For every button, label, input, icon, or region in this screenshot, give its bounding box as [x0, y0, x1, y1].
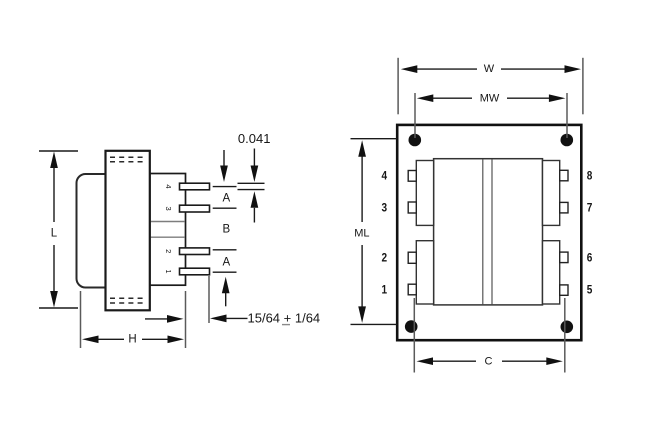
svg-text:3: 3 [164, 207, 173, 211]
svg-text:W: W [484, 63, 495, 75]
svg-text:0.041: 0.041 [238, 131, 271, 146]
svg-text:A: A [222, 192, 230, 204]
svg-text:6: 6 [587, 250, 593, 264]
svg-text:2: 2 [382, 250, 388, 264]
svg-text:7: 7 [587, 200, 593, 214]
svg-text:4: 4 [382, 168, 388, 182]
svg-text:2: 2 [164, 249, 173, 253]
svg-text:3: 3 [382, 200, 388, 214]
svg-text:MW: MW [480, 92, 500, 104]
svg-text:ML: ML [354, 228, 369, 240]
svg-text:A: A [222, 257, 230, 269]
svg-text:H: H [128, 333, 136, 345]
svg-text:1: 1 [382, 282, 388, 296]
svg-text:8: 8 [587, 168, 593, 182]
svg-text:1: 1 [164, 269, 173, 273]
svg-text:15/64 + 1/64: 15/64 + 1/64 [248, 310, 321, 325]
svg-text:C: C [485, 355, 493, 367]
svg-text:B: B [222, 224, 230, 236]
svg-text:4: 4 [164, 184, 173, 188]
svg-text:5: 5 [587, 282, 593, 296]
svg-text:L: L [51, 228, 58, 240]
